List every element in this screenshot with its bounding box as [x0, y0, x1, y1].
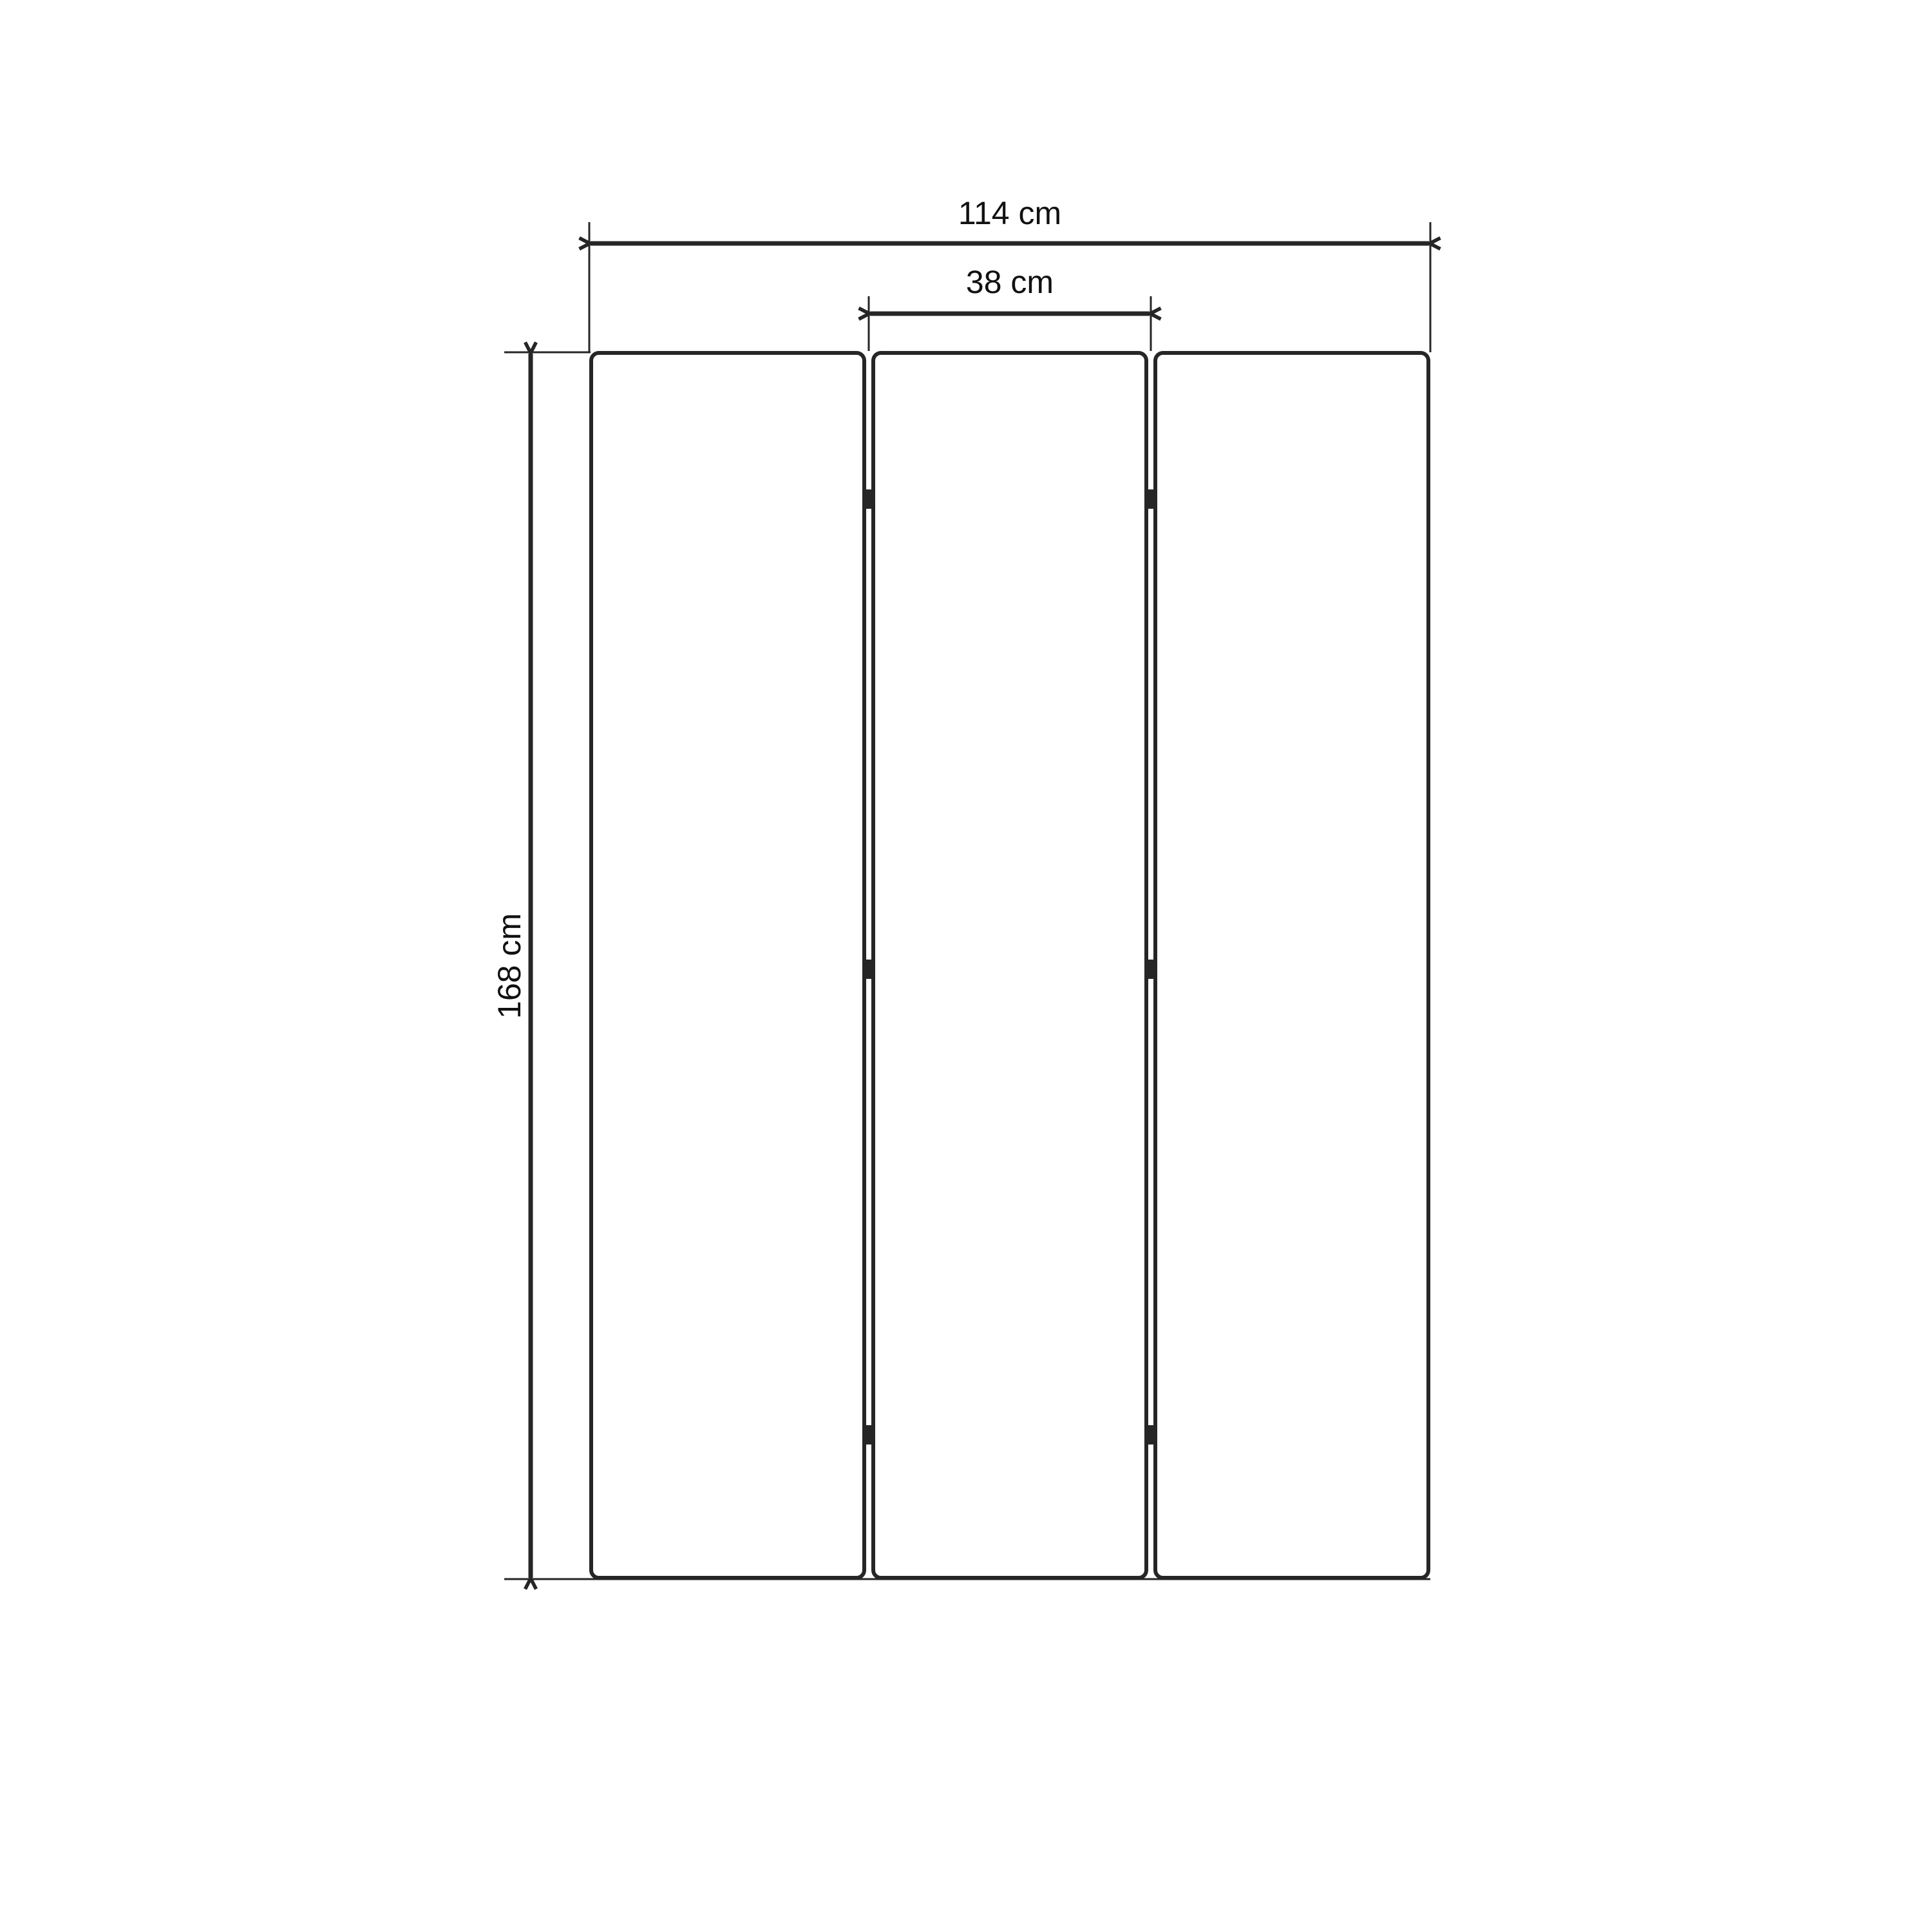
dimension-panel-width: 38 cm — [869, 264, 1151, 351]
hinge-left-bottom — [864, 1425, 873, 1444]
height-label: 168 cm — [491, 913, 527, 1019]
dimension-drawing: 114 cm 38 cm 168 cm — [0, 0, 1932, 1932]
hinge-right-top — [1146, 489, 1155, 509]
total-width-label: 114 cm — [958, 195, 1061, 231]
panels — [591, 353, 1428, 1578]
panel-center — [873, 353, 1146, 1578]
panel-width-label: 38 cm — [966, 264, 1054, 300]
hinge-left-top — [864, 489, 873, 509]
hinge-right-bottom — [1146, 1425, 1155, 1444]
drawing-canvas: 114 cm 38 cm 168 cm — [0, 0, 1932, 1932]
hinge-left-middle — [864, 960, 873, 979]
panel-right — [1155, 353, 1428, 1578]
panel-left — [591, 353, 864, 1578]
hinge-right-middle — [1146, 960, 1155, 979]
